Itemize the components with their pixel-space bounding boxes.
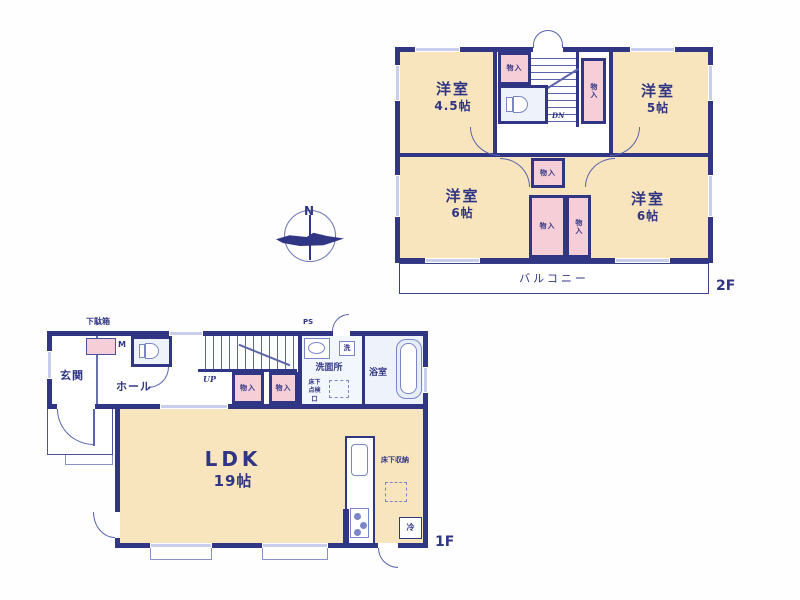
closet-label: 物入 <box>240 384 256 393</box>
underfloor-storage-label: 床下収納 <box>381 455 409 466</box>
door-opening <box>115 512 120 538</box>
window <box>708 65 713 101</box>
room-size: 5帖 <box>618 101 698 116</box>
closet-label: 物入 <box>276 384 292 393</box>
floor1-plan: 玄関 M ホール UP 物入 物入 <box>47 331 467 581</box>
door-arc <box>500 158 530 187</box>
kitchen-counter <box>345 436 375 543</box>
shoe-cabinet <box>86 338 116 355</box>
terrace-step <box>150 548 212 560</box>
door-arc <box>93 512 115 538</box>
bathroom-label: 浴室 <box>369 368 387 379</box>
door-opening <box>333 331 350 336</box>
kitchen-sink-icon <box>351 444 368 476</box>
room-bedroom-se: 洋室 6帖 <box>610 190 686 224</box>
hall-label: ホール <box>116 380 152 394</box>
underfloor-storage-box <box>385 482 407 502</box>
floor2-label: 2F <box>716 278 735 296</box>
door-arc <box>332 314 349 331</box>
bathroom: 浴室 <box>362 336 423 404</box>
inspection-hatch-box <box>329 380 349 398</box>
closet-label: 物入 <box>507 64 523 73</box>
closet: 物入 <box>269 372 298 404</box>
room-size: 6帖 <box>610 209 686 224</box>
closet-label: 物入 <box>540 222 556 231</box>
sliding-door-opening <box>160 404 228 409</box>
closet-label: 物入 <box>589 83 598 99</box>
stairs-up-label: UP <box>203 374 216 384</box>
door-arc <box>610 127 640 156</box>
room-label: 洋室 <box>618 82 698 101</box>
burner-icon <box>360 522 367 529</box>
toilet-room <box>498 85 548 124</box>
sink-basin-icon <box>308 342 325 354</box>
ldk-label: LDK <box>173 447 293 472</box>
room-size: 4.5帖 <box>418 99 488 114</box>
floor2-outline: DN 物入 物入 物入 物入 物入 <box>395 47 713 263</box>
room-size: 6帖 <box>425 206 500 221</box>
window <box>415 47 460 52</box>
closet: 物入 <box>581 58 606 124</box>
floor1-label: 1F <box>435 534 454 552</box>
window <box>708 175 713 217</box>
room-bedroom-nw: 洋室 4.5帖 <box>418 80 488 114</box>
staircase-up <box>198 336 297 372</box>
inspection-hatch-label: 床下点検口 <box>307 379 322 404</box>
porch-step <box>65 455 113 465</box>
balcony: バルコニー <box>399 263 709 294</box>
wall <box>400 153 708 157</box>
floor1-upper-band: 玄関 M ホール UP 物入 物入 <box>47 331 428 409</box>
closet-label: 物入 <box>540 169 556 178</box>
terrace-step <box>262 548 328 560</box>
window <box>395 175 400 217</box>
stairs-dn-label: DN <box>552 112 564 121</box>
bathtub-icon <box>396 339 422 399</box>
door-arc <box>585 158 615 187</box>
fridge-label: 冷 <box>407 523 415 533</box>
room-bedroom-sw: 洋室 6帖 <box>425 187 500 221</box>
washer-box: 洗 <box>339 341 355 356</box>
closet: 物入 <box>531 158 565 188</box>
window <box>169 331 203 336</box>
window <box>630 47 675 52</box>
entrance-label: 玄関 <box>60 369 84 383</box>
toilet-tank-icon <box>506 97 513 112</box>
room-label: 洋室 <box>425 187 500 206</box>
ps-label: PS <box>303 318 313 327</box>
door-arc <box>378 548 398 568</box>
burner-icon <box>354 529 361 536</box>
toilet-bowl-icon <box>513 96 528 113</box>
ldk-room: LDK 19帖 床下収納 冷 <box>115 404 428 548</box>
room-label: 洋室 <box>418 80 488 99</box>
window <box>423 367 428 393</box>
balcony-label: バルコニー <box>519 272 589 286</box>
burner-icon <box>354 513 361 520</box>
window <box>47 351 52 379</box>
stair-dome-arc <box>533 30 563 48</box>
ldk-size: 19帖 <box>173 472 293 491</box>
closet: 物入 <box>498 52 531 85</box>
sink-icon <box>304 338 330 359</box>
meter-label: M <box>118 340 126 350</box>
compass: N <box>280 203 344 265</box>
window <box>395 65 400 101</box>
room-bedroom-ne: 洋室 5帖 <box>618 82 698 116</box>
wall <box>343 509 349 543</box>
bathtub-inner-icon <box>400 343 417 394</box>
toilet-bowl-icon <box>145 343 159 359</box>
washroom-label: 洗面所 <box>304 363 354 374</box>
entrance-door-leaf <box>93 409 95 446</box>
floor-plan-canvas: N DN 物入 物入 <box>0 0 800 600</box>
closet: 物入 <box>566 195 591 258</box>
fridge-box: 冷 <box>399 517 422 539</box>
closet-label: 物入 <box>574 219 583 235</box>
toilet-room <box>131 336 172 367</box>
closet: 物入 <box>232 372 264 404</box>
washer-label: 洗 <box>344 344 351 353</box>
stove-icon <box>350 508 369 538</box>
door-arc <box>470 127 500 156</box>
shoe-cabinet-label: 下駄箱 <box>86 317 110 327</box>
floor2-plan: DN 物入 物入 物入 物入 物入 <box>395 47 740 297</box>
room-label: 洋室 <box>610 190 686 209</box>
closet: 物入 <box>529 195 566 258</box>
ldk-label-block: LDK 19帖 <box>173 447 293 491</box>
